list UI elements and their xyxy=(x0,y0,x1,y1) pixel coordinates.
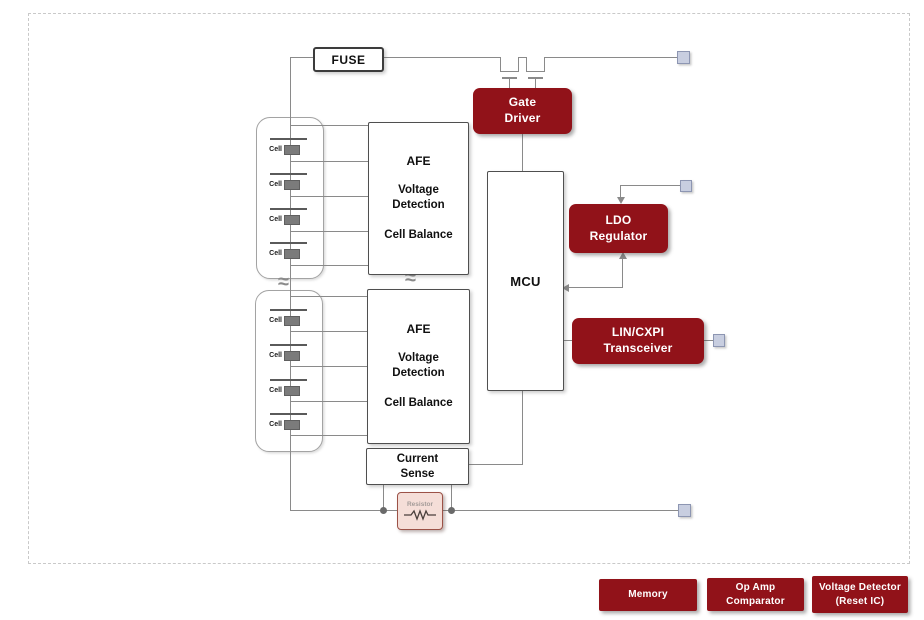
gate-driver-block: Gate Driver xyxy=(473,88,572,134)
afe-function: Voltage Detection xyxy=(379,351,459,381)
cell-terminal-icon xyxy=(284,145,300,155)
legend-label: Comparator xyxy=(726,595,785,609)
mcu-block: MCU xyxy=(487,171,564,391)
current-sense-label: Current xyxy=(397,452,439,466)
wire-tap xyxy=(290,196,368,197)
wire-tap xyxy=(290,401,367,402)
fuse-block: FUSE xyxy=(313,47,384,72)
cell-terminal-icon xyxy=(284,316,300,326)
wire-tap xyxy=(290,296,367,297)
cell-terminal-icon xyxy=(284,386,300,396)
connector-pad-top xyxy=(677,51,690,64)
cell-plate-icon xyxy=(270,413,307,415)
cell-label: Cell xyxy=(261,181,282,188)
junction-dot xyxy=(380,507,387,514)
wire-ldo-mcu-v xyxy=(622,258,623,288)
legend-label: (Reset IC) xyxy=(836,595,885,609)
resistor-label: Resistor xyxy=(407,501,433,508)
connector-pad-bottom xyxy=(678,504,691,517)
wire-tap xyxy=(290,331,367,332)
afe-function: Voltage Detection xyxy=(379,183,459,213)
wire-tap xyxy=(290,231,368,232)
afe-block-2: AFE Voltage Detection Cell Balance xyxy=(367,289,470,444)
wire-pad-ldo-h xyxy=(621,185,680,186)
wire-rail-right xyxy=(544,57,678,58)
resistor-zigzag-icon xyxy=(403,509,437,521)
junction-dot xyxy=(448,507,455,514)
cell-terminal-icon xyxy=(284,351,300,361)
afe-title: AFE xyxy=(407,322,431,336)
wire-fuse-right xyxy=(380,57,501,58)
mosfet1-source-icon xyxy=(518,57,519,72)
cell-label: Cell xyxy=(261,421,282,428)
break-squiggle-icon: ≈ xyxy=(278,272,289,292)
cell-label: Cell xyxy=(261,317,282,324)
cell-label: Cell xyxy=(261,146,282,153)
mcu-label: MCU xyxy=(510,274,541,289)
cell-plate-icon xyxy=(270,208,307,210)
cell-terminal-icon xyxy=(284,215,300,225)
cell-label: Cell xyxy=(261,250,282,257)
cell-plate-icon xyxy=(270,242,307,244)
shunt-resistor-block: Resistor xyxy=(397,492,443,530)
ldo-label: LDO xyxy=(606,213,632,229)
arrow-into-ldo-top xyxy=(617,197,625,204)
ldo-label: Regulator xyxy=(590,229,648,245)
current-sense-block: Current Sense xyxy=(366,448,469,485)
wire-bottom-run xyxy=(290,510,678,511)
legend-label: Voltage Detector xyxy=(819,581,901,595)
fuse-label: FUSE xyxy=(331,53,365,67)
cell-plate-icon xyxy=(270,379,307,381)
wire-tap xyxy=(290,366,367,367)
afe-title: AFE xyxy=(407,154,431,168)
cell-plate-icon xyxy=(270,309,307,311)
mosfet2-source-icon xyxy=(544,57,545,72)
wire-gatedriver-mcu xyxy=(522,134,523,171)
cell-label: Cell xyxy=(261,352,282,359)
legend-label: Op Amp xyxy=(736,581,776,595)
legend-opamp-comparator-block: Op Amp Comparator xyxy=(707,578,804,611)
cell-plate-icon xyxy=(270,344,307,346)
cell-terminal-icon xyxy=(284,420,300,430)
afe-function: Cell Balance xyxy=(379,396,459,411)
cell-terminal-icon xyxy=(284,249,300,259)
wire-mosfet2-gate xyxy=(535,79,536,88)
wire-mcu-currentsense xyxy=(467,464,523,465)
legend-voltage-detector-block: Voltage Detector (Reset IC) xyxy=(812,576,908,613)
wire-tap xyxy=(290,125,368,126)
cell-label: Cell xyxy=(261,216,282,223)
mosfet2-drain-icon xyxy=(526,57,527,72)
arrow-into-ldo-bottom xyxy=(619,252,627,259)
legend-label: Memory xyxy=(628,588,668,602)
wire-mosfet1-gate xyxy=(509,79,510,88)
wire-fuse-left xyxy=(290,57,314,58)
wire-tap xyxy=(290,265,368,266)
lin-label: Transceiver xyxy=(604,341,673,357)
legend-memory-block: Memory xyxy=(599,579,697,611)
mosfet1-drain-icon xyxy=(500,57,501,72)
gate-driver-label: Gate xyxy=(509,95,536,111)
afe-function: Cell Balance xyxy=(379,228,459,243)
wire-mcu-bottom xyxy=(522,389,523,465)
current-sense-label: Sense xyxy=(401,467,435,481)
mosfet1-channel-icon xyxy=(500,71,519,72)
lin-cxpi-transceiver-block: LIN/CXPI Transceiver xyxy=(572,318,704,364)
wire-ldo-mcu-h xyxy=(568,287,623,288)
cell-plate-icon xyxy=(270,138,307,140)
afe-block-1: AFE Voltage Detection Cell Balance xyxy=(368,122,469,275)
connector-pad-lin xyxy=(713,334,725,347)
cell-label: Cell xyxy=(261,387,282,394)
wire-tap xyxy=(290,161,368,162)
lin-label: LIN/CXPI xyxy=(612,325,664,341)
ldo-regulator-block: LDO Regulator xyxy=(569,204,668,253)
cell-plate-icon xyxy=(270,173,307,175)
connector-pad-ldo xyxy=(680,180,692,192)
wire-tap xyxy=(290,435,367,436)
mosfet2-channel-icon xyxy=(526,71,545,72)
bms-block-diagram: Cell Cell Cell Cell Cell Cell Cell Cell … xyxy=(0,0,924,620)
gate-driver-label: Driver xyxy=(505,111,541,127)
cell-terminal-icon xyxy=(284,180,300,190)
